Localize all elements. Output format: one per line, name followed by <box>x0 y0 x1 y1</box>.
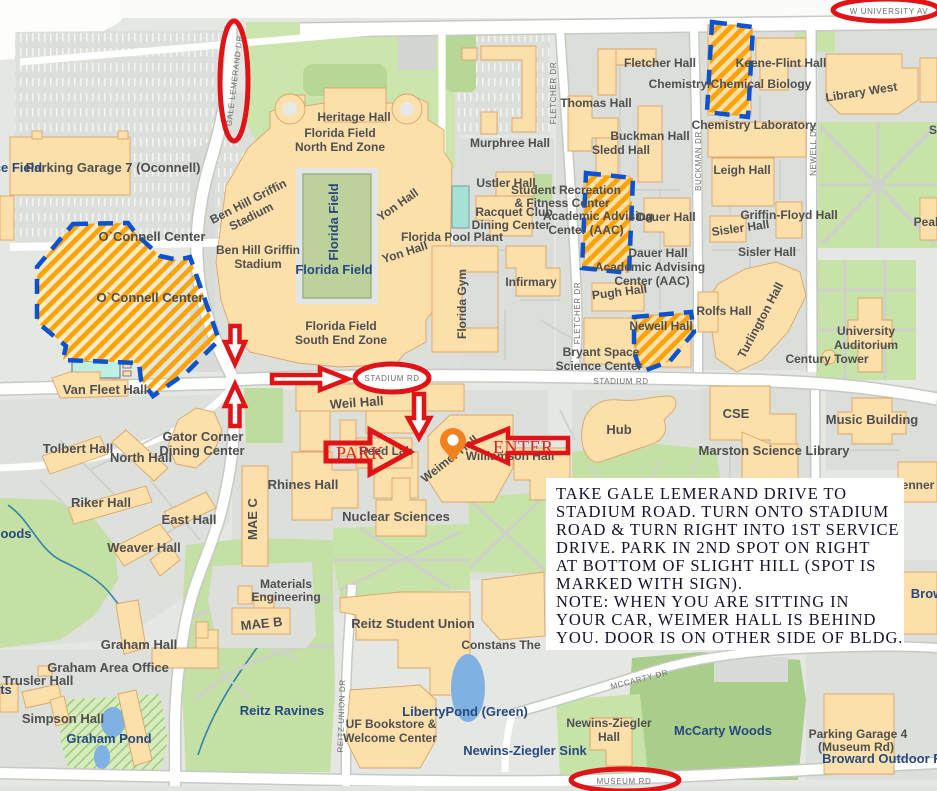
svg-text:ce Field: ce Field <box>0 160 42 175</box>
svg-text:North End Zone: North End Zone <box>295 140 385 154</box>
svg-text:Buckman Hall: Buckman Hall <box>610 129 689 143</box>
svg-text:Reitz Student Union: Reitz Student Union <box>351 616 475 631</box>
svg-text:Florida Field: Florida Field <box>304 126 375 140</box>
svg-text:NEWELL DR: NEWELL DR <box>809 124 818 176</box>
svg-text:Rhines Hall: Rhines Hall <box>268 477 339 492</box>
svg-text:Welcome Center: Welcome Center <box>343 731 437 745</box>
svg-text:ENTER: ENTER <box>493 437 554 457</box>
svg-text:Hall: Hall <box>598 730 620 744</box>
svg-text:Stadium: Stadium <box>234 257 281 271</box>
svg-text:enner: enner <box>902 478 935 492</box>
svg-text:MUSEUM RD: MUSEUM RD <box>597 777 652 786</box>
svg-text:Leigh Hall: Leigh Hall <box>713 163 770 177</box>
svg-text:O`Connell Center: O`Connell Center <box>99 229 206 244</box>
svg-text:South End Zone: South End Zone <box>295 333 387 347</box>
svg-text:Engineering: Engineering <box>251 590 320 604</box>
svg-text:NOTE: WHEN YOU ARE SITTING IN: NOTE: WHEN YOU ARE SITTING IN <box>556 592 849 611</box>
svg-text:Dining Center: Dining Center <box>159 443 244 458</box>
svg-text:Reitz Ravines: Reitz Ravines <box>240 703 325 718</box>
svg-text:Tolbert Hall: Tolbert Hall <box>43 441 114 456</box>
svg-text:STADIUM RD: STADIUM RD <box>364 374 419 383</box>
svg-text:Trusler Hall: Trusler Hall <box>3 673 74 688</box>
svg-text:Van Fleet Hall: Van Fleet Hall <box>63 382 148 397</box>
svg-text:Newins-Ziegler Sink: Newins-Ziegler Sink <box>463 743 587 758</box>
svg-text:Florida Gym: Florida Gym <box>455 269 469 339</box>
svg-text:STADIUM ROAD. TURN ONTO STADI: STADIUM ROAD. TURN ONTO STADIUM <box>556 502 889 521</box>
svg-text:McCarty Woods: McCarty Woods <box>674 723 772 738</box>
svg-text:Dauer Hall: Dauer Hall <box>628 246 687 260</box>
svg-text:Peab: Peab <box>914 215 937 229</box>
svg-text:Graham Hall: Graham Hall <box>101 637 178 652</box>
svg-text:Auditorium: Auditorium <box>834 338 898 352</box>
svg-text:TAKE GALE LEMERAND DRIVE TO: TAKE GALE LEMERAND DRIVE TO <box>556 484 847 503</box>
svg-text:LibertyPond (Green): LibertyPond (Green) <box>402 704 528 719</box>
svg-text:Broward Outdoor Re: Broward Outdoor Re <box>822 751 937 766</box>
svg-text:Parking Garage 7 (Oconnell): Parking Garage 7 (Oconnell) <box>26 160 201 175</box>
svg-text:Keene-Flint Hall: Keene-Flint Hall <box>736 56 827 70</box>
svg-text:AT BOTTOM OF SLIGHT HILL (SPOT: AT BOTTOM OF SLIGHT HILL (SPOT IS <box>556 556 876 575</box>
svg-text:oods: oods <box>0 526 31 541</box>
svg-text:North Hall: North Hall <box>110 450 172 465</box>
svg-text:Racquet Club: Racquet Club <box>475 205 552 219</box>
svg-text:MARKED WITH SIGN).: MARKED WITH SIGN). <box>556 574 743 593</box>
svg-text:Academic Advising: Academic Advising <box>595 260 705 274</box>
svg-text:Hub: Hub <box>606 422 631 437</box>
svg-text:Florida Field: Florida Field <box>305 319 376 333</box>
svg-text:Florida Field: Florida Field <box>326 183 341 260</box>
svg-text:ROAD & TURN RIGHT INTO 1ST SER: ROAD & TURN RIGHT INTO 1ST SERVICE <box>556 520 899 539</box>
svg-text:MAE C: MAE C <box>245 497 260 540</box>
svg-text:Constans The: Constans The <box>461 638 541 652</box>
svg-text:Fletcher Hall: Fletcher Hall <box>624 56 696 70</box>
svg-text:O`Connell Center: O`Connell Center <box>97 290 204 305</box>
svg-text:Parking Garage 4: Parking Garage 4 <box>809 727 908 741</box>
svg-text:Materials: Materials <box>260 577 312 591</box>
svg-text:Marston Science Library: Marston Science Library <box>699 443 851 458</box>
svg-text:FLETCHER DR: FLETCHER DR <box>573 282 582 345</box>
svg-text:STADIUM RD: STADIUM RD <box>593 377 648 386</box>
svg-text:Dauer Hall: Dauer Hall <box>636 210 695 224</box>
svg-text:Brow: Brow <box>911 586 937 601</box>
svg-text:Music Building: Music Building <box>826 412 919 427</box>
svg-text:Science Center: Science Center <box>556 359 643 373</box>
svg-text:Chemistry/Chemical Biology: Chemistry/Chemical Biology <box>649 77 812 91</box>
svg-text:University: University <box>837 324 895 338</box>
svg-text:Center (AAC): Center (AAC) <box>548 223 623 237</box>
svg-text:ts: ts <box>0 682 12 697</box>
svg-text:Heritage Hall: Heritage Hall <box>317 110 390 124</box>
svg-text:Nuclear Sciences: Nuclear Sciences <box>342 509 450 524</box>
svg-text:Simpson Hall: Simpson Hall <box>22 711 104 726</box>
svg-text:Chemistry Laboratory: Chemistry Laboratory <box>692 118 817 132</box>
svg-text:UF Bookstore &: UF Bookstore & <box>346 717 437 731</box>
svg-text:YOUR CAR, WEIMER HALL IS BEHIN: YOUR CAR, WEIMER HALL IS BEHIND <box>556 610 876 629</box>
svg-text:Florida Pool Plant: Florida Pool Plant <box>401 230 503 244</box>
svg-text:Rolfs Hall: Rolfs Hall <box>696 304 751 318</box>
svg-text:Gator Corner: Gator Corner <box>163 429 244 444</box>
svg-text:East Hall: East Hall <box>162 512 217 527</box>
svg-text:W UNIVERSITY AV: W UNIVERSITY AV <box>850 7 929 16</box>
svg-text:FLETCHER DR: FLETCHER DR <box>549 62 558 125</box>
svg-text:PARK: PARK <box>336 443 384 463</box>
svg-text:Florida Field: Florida Field <box>295 262 372 277</box>
svg-text:Student Recreation: Student Recreation <box>511 183 621 197</box>
svg-text:Bryant Space: Bryant Space <box>563 345 640 359</box>
svg-text:Murphree Hall: Murphree Hall <box>470 136 550 150</box>
svg-text:Infirmary: Infirmary <box>505 275 557 289</box>
svg-text:YOU. DOOR IS ON OTHER SIDE OF: YOU. DOOR IS ON OTHER SIDE OF BLDG. <box>556 628 903 647</box>
svg-text:Riker Hall: Riker Hall <box>71 495 131 510</box>
svg-text:DRIVE. PARK IN 2ND SPOT ON RI: DRIVE. PARK IN 2ND SPOT ON RIGHT <box>556 538 870 557</box>
svg-text:Newins-Ziegler: Newins-Ziegler <box>566 716 652 730</box>
svg-text:Sledd Hall: Sledd Hall <box>592 143 650 157</box>
svg-text:Weaver Hall: Weaver Hall <box>107 540 180 555</box>
svg-text:S: S <box>929 123 937 137</box>
svg-text:Graham Pond: Graham Pond <box>66 731 151 746</box>
svg-text:Thomas Hall: Thomas Hall <box>560 96 631 110</box>
svg-text:CSE: CSE <box>723 406 750 421</box>
svg-text:Ben Hill Griffin: Ben Hill Griffin <box>216 243 300 257</box>
svg-text:Century Tower: Century Tower <box>785 352 868 366</box>
svg-text:Newell Hall: Newell Hall <box>629 319 692 333</box>
svg-text:BUCKMAN DR: BUCKMAN DR <box>694 131 703 191</box>
svg-text:Sisler Hall: Sisler Hall <box>738 245 796 259</box>
